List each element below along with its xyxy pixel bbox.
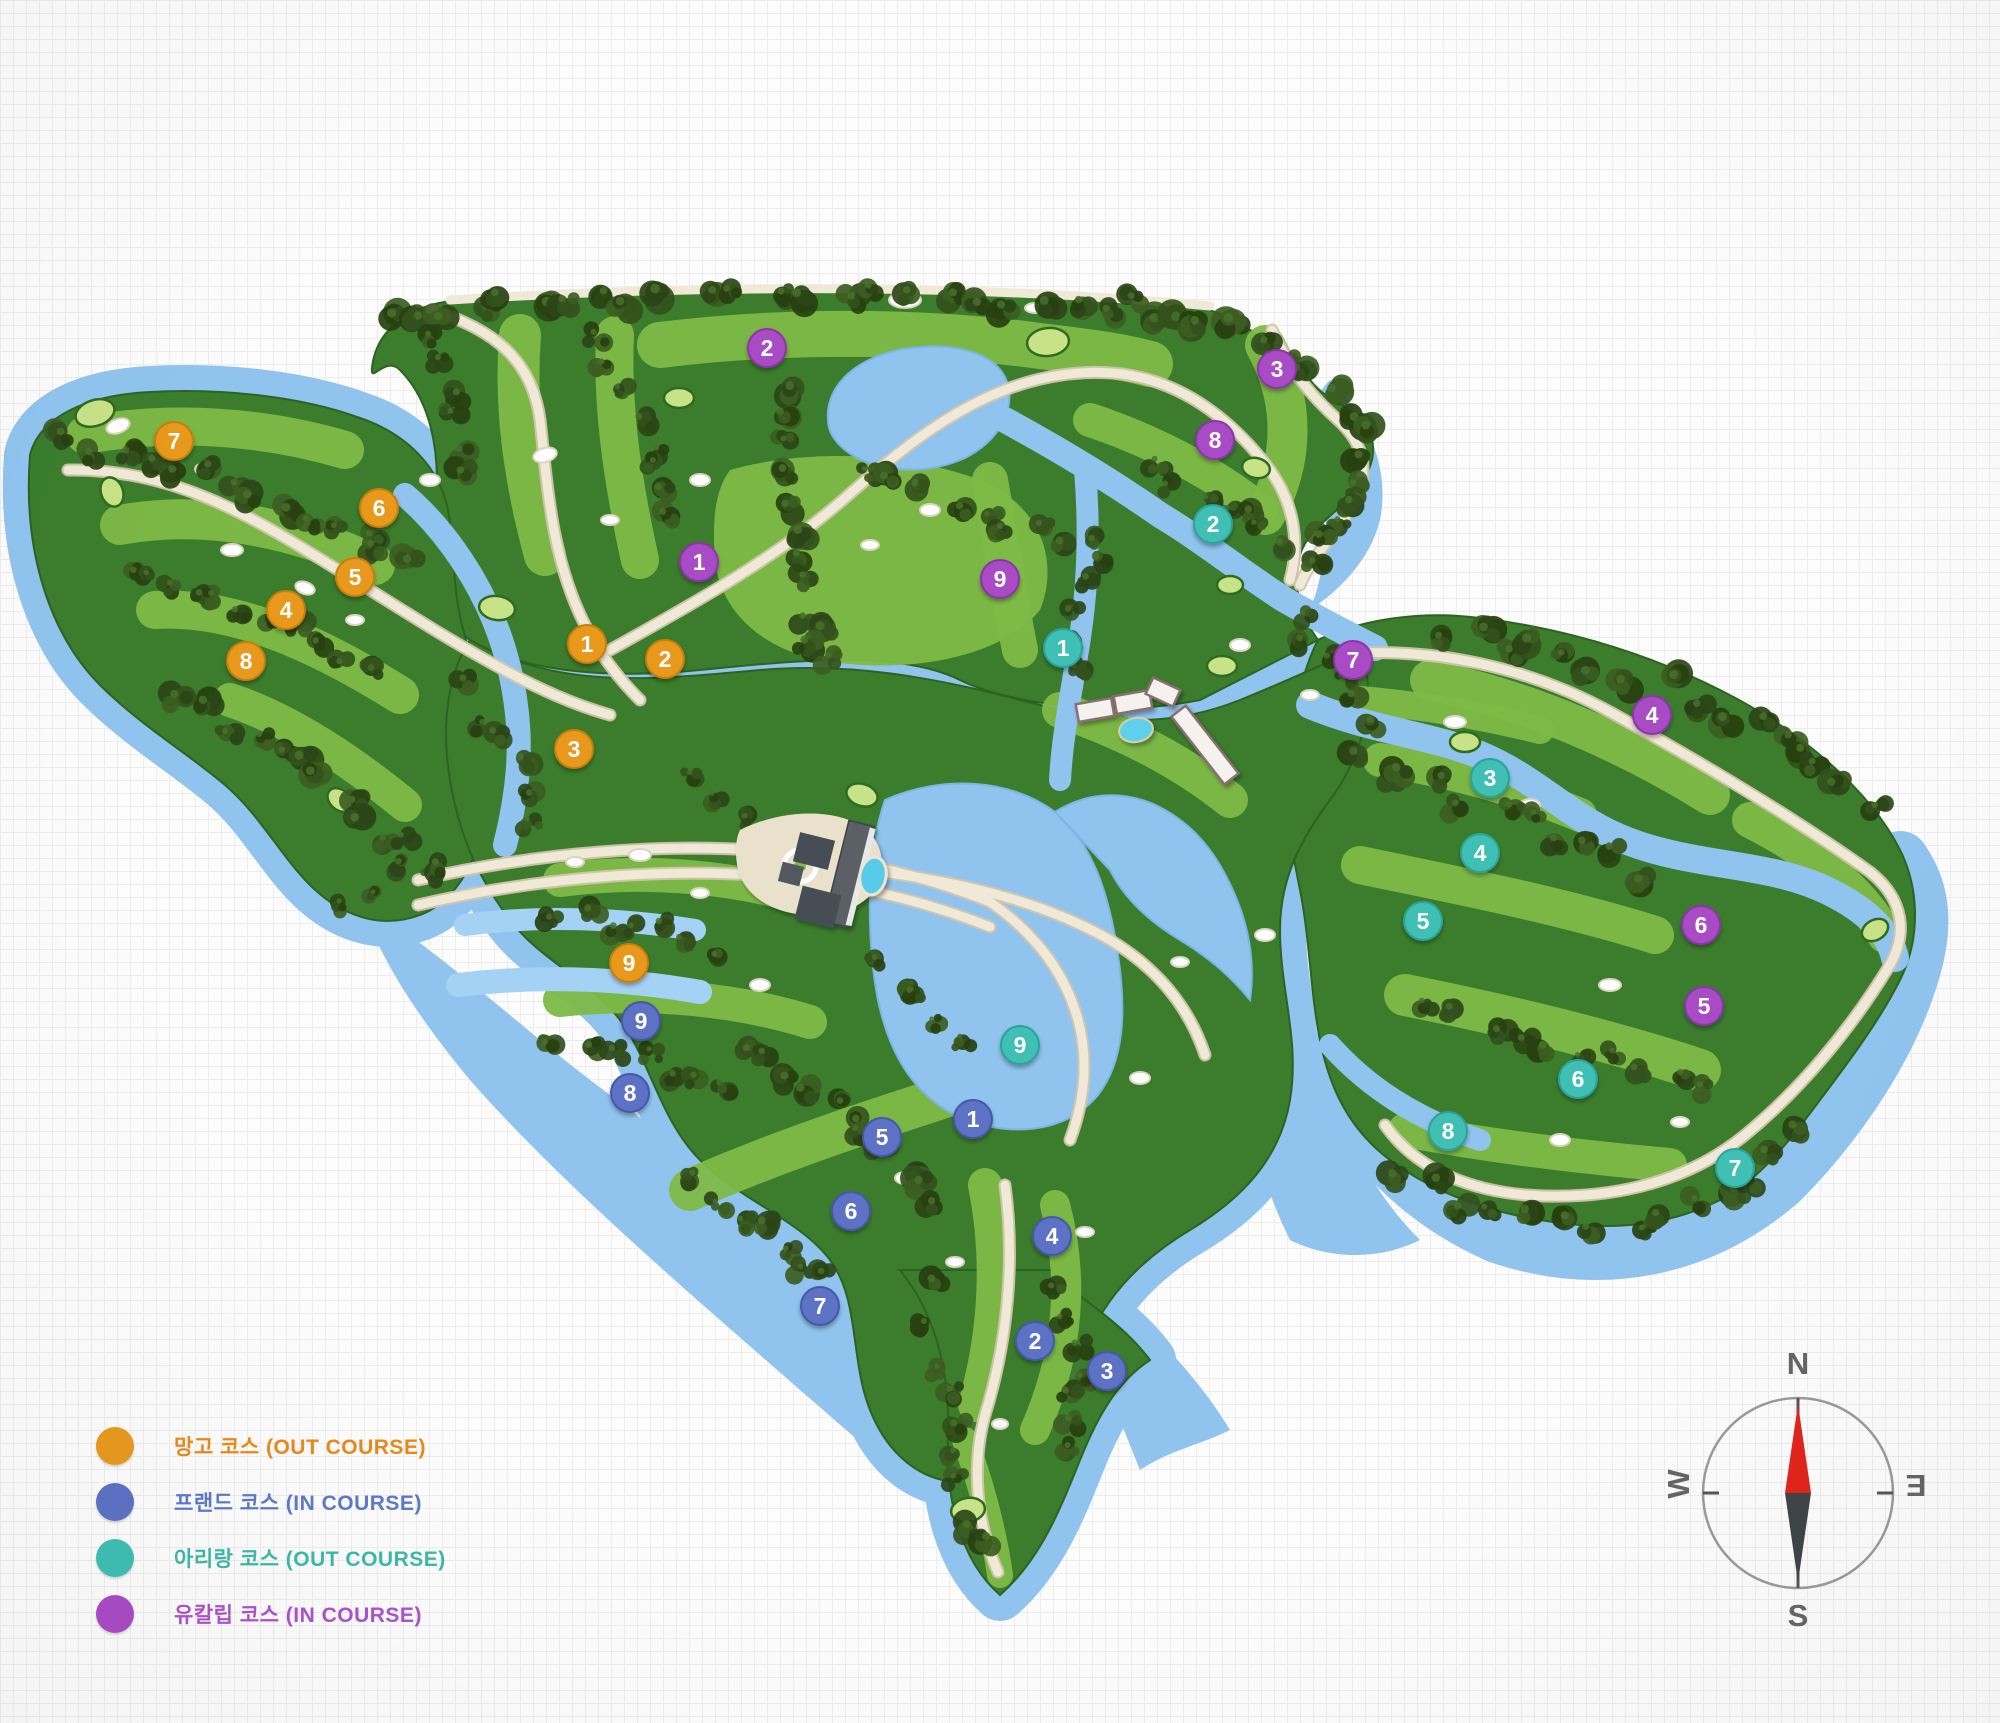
tree-highlight (669, 1070, 676, 1077)
tree-highlight (1350, 479, 1356, 485)
tree-cluster (995, 530, 1006, 541)
tree-highlight (947, 1385, 953, 1391)
hole-marker-mango-2[interactable]: 2 (646, 640, 684, 678)
sand-bunker (946, 1257, 964, 1267)
tree-highlight (1578, 837, 1586, 845)
tree-highlight (1152, 456, 1158, 462)
tree-highlight (148, 455, 155, 462)
hole-marker-arirang-1[interactable]: 1 (1044, 629, 1082, 667)
tree-highlight (1435, 632, 1442, 639)
tree-highlight (950, 1419, 957, 1426)
hole-marker-arirang-2[interactable]: 2 (1194, 505, 1232, 543)
hole-marker-number: 6 (845, 1198, 858, 1224)
sand-bunker (1171, 957, 1189, 967)
tree-highlight (1245, 505, 1252, 512)
sand-bunker (566, 857, 584, 867)
legend-label-eucalyptus: 유칼립 코스 (IN COURSE) (174, 1599, 422, 1629)
tree-highlight (949, 288, 957, 296)
tree-highlight (336, 898, 341, 903)
tree-highlight (196, 589, 203, 596)
tree-cluster (310, 519, 320, 529)
hole-marker-number: 8 (1442, 1118, 1455, 1144)
tree-highlight (982, 1532, 990, 1540)
tree-highlight (1300, 610, 1305, 615)
hole-marker-mango-4[interactable]: 4 (267, 591, 305, 629)
tree-highlight (1634, 874, 1642, 882)
hole-marker-friend-8[interactable]: 8 (611, 1074, 649, 1112)
tree-cluster (1070, 1385, 1084, 1399)
hole-marker-friend-3[interactable]: 3 (1088, 1352, 1126, 1390)
tree-highlight (1558, 649, 1565, 656)
tree-highlight (793, 525, 802, 534)
tree-highlight (984, 511, 989, 516)
tree-highlight (1639, 1225, 1645, 1231)
tree-cluster (581, 910, 593, 922)
hole-marker-mango-3[interactable]: 3 (555, 730, 593, 768)
tree-highlight (1518, 1034, 1525, 1041)
tree-cluster (338, 903, 346, 911)
tree-highlight (1203, 494, 1209, 500)
tree-highlight (780, 435, 786, 441)
tree-cluster (1080, 1334, 1094, 1348)
tree-highlight (1276, 538, 1283, 545)
tree-highlight (903, 286, 910, 293)
tree-highlight (1335, 516, 1341, 522)
tree-highlight (950, 1447, 956, 1453)
hole-marker-number: 8 (1209, 427, 1222, 453)
tree-highlight (204, 460, 211, 467)
tree-highlight (758, 1048, 765, 1055)
hole-marker-friend-2[interactable]: 2 (1016, 1322, 1054, 1360)
tree-cluster (824, 626, 838, 640)
tree-highlight (1057, 1314, 1062, 1319)
tree-highlight (650, 457, 656, 463)
legend-color-dot-eucalyptus (96, 1595, 134, 1633)
tree-cluster (951, 1043, 959, 1051)
tree-highlight (1550, 834, 1557, 841)
tree-highlight (797, 1263, 803, 1269)
tree-highlight (776, 407, 784, 415)
hole-marker-eucalyptus-5[interactable]: 5 (1685, 987, 1723, 1025)
tree-highlight (1388, 1169, 1396, 1177)
legend-label-mango: 망고 코스 (OUT COURSE) (174, 1431, 426, 1461)
tree-highlight (1760, 1146, 1768, 1154)
tree-highlight (434, 312, 442, 320)
hole-marker-arirang-4[interactable]: 4 (1461, 834, 1499, 872)
tree-cluster (582, 335, 595, 348)
hole-marker-mango-8[interactable]: 8 (227, 642, 265, 680)
tree-cluster (664, 482, 675, 493)
tree-cluster (1065, 1317, 1074, 1326)
tree-highlight (655, 483, 662, 490)
hole-marker-friend-7[interactable]: 7 (801, 1287, 839, 1325)
tree-highlight (737, 1216, 743, 1222)
hole-marker-arirang-7[interactable]: 7 (1716, 1149, 1754, 1187)
sand-bunker (920, 504, 940, 516)
tree-highlight (837, 1097, 844, 1104)
tree-highlight (232, 606, 238, 612)
tree-highlight (1432, 1173, 1441, 1182)
tree-cluster (1432, 778, 1447, 793)
tree-highlight (303, 515, 309, 521)
green-pad (664, 388, 694, 408)
hole-marker-number: 4 (1474, 840, 1487, 866)
tree-highlight (742, 813, 748, 819)
hole-marker-arirang-6[interactable]: 6 (1559, 1060, 1597, 1098)
tree-highlight (526, 789, 533, 796)
hole-marker-friend-9[interactable]: 9 (622, 1002, 660, 1040)
tree-cluster (914, 1325, 927, 1338)
tree-highlight (799, 612, 806, 619)
tree-cluster (1258, 521, 1267, 530)
tree-highlight (1454, 1202, 1462, 1210)
tree-highlight (650, 284, 660, 294)
tree-highlight (1561, 1211, 1569, 1219)
tree-highlight (1872, 802, 1878, 808)
tree-highlight (659, 508, 666, 515)
tree-highlight (676, 934, 682, 940)
hole-marker-arirang-9[interactable]: 9 (1001, 1026, 1039, 1064)
compass-needle-north (1785, 1404, 1811, 1493)
tree-highlight (295, 751, 304, 760)
tree-highlight (1348, 690, 1355, 697)
tree-cluster (936, 1371, 945, 1380)
hole-marker-friend-4[interactable]: 4 (1033, 1217, 1071, 1255)
tree-cluster (1317, 557, 1332, 572)
tree-highlight (799, 571, 805, 577)
tree-highlight (792, 288, 801, 297)
tree-cluster (764, 1211, 781, 1228)
tree-cluster (1157, 486, 1170, 499)
tree-cluster (1228, 502, 1237, 511)
tree-highlight (1128, 292, 1135, 299)
hole-marker-eucalyptus-4[interactable]: 4 (1633, 696, 1671, 734)
tree-cluster (832, 650, 842, 660)
tree-cluster (395, 837, 405, 847)
tree-highlight (85, 448, 92, 455)
tree-cluster (590, 364, 603, 377)
tree-cluster (481, 310, 492, 321)
tree-highlight (654, 445, 659, 450)
tree-cluster (336, 520, 349, 533)
tree-highlight (880, 472, 888, 480)
tree-highlight (871, 954, 877, 960)
tree-highlight (709, 790, 715, 796)
hole-marker-friend-1[interactable]: 1 (954, 1100, 992, 1138)
tree-cluster (926, 1203, 938, 1215)
hole-marker-eucalyptus-2[interactable]: 2 (748, 329, 786, 367)
tree-cluster (623, 928, 632, 937)
tree-highlight (584, 904, 591, 911)
hole-marker-number: 7 (168, 428, 181, 454)
tree-highlight (963, 1520, 971, 1528)
tree-highlight (1324, 652, 1330, 658)
tree-cluster (1637, 1065, 1648, 1076)
tree-highlight (350, 813, 359, 822)
hole-marker-number: 5 (1698, 993, 1711, 1019)
golf-course-map-page: 123456789123456789123456789123456789 N S… (0, 0, 2000, 1723)
tree-cluster (230, 732, 243, 745)
sand-bunker (1599, 979, 1621, 991)
hole-marker-number: 9 (994, 566, 1007, 592)
hole-marker-number: 1 (693, 549, 706, 575)
hole-marker-eucalyptus-9[interactable]: 9 (981, 560, 1019, 598)
legend-color-dot-arirang (96, 1539, 134, 1577)
tree-cluster (1045, 517, 1056, 528)
tree-cluster (462, 443, 474, 455)
sand-bunker (346, 615, 364, 625)
tree-cluster (1073, 601, 1086, 614)
tree-highlight (167, 580, 173, 586)
tree-highlight (1691, 1195, 1697, 1201)
hole-marker-arirang-3[interactable]: 3 (1471, 759, 1509, 797)
tree-highlight (367, 540, 374, 547)
hole-marker-arirang-8[interactable]: 8 (1429, 1112, 1467, 1150)
sand-bunker (1550, 1134, 1570, 1146)
tree-cluster (731, 288, 742, 299)
hole-marker-number: 3 (1101, 1358, 1114, 1384)
tree-highlight (906, 986, 913, 993)
hole-marker-mango-1[interactable]: 1 (568, 625, 606, 663)
tree-highlight (1065, 1415, 1071, 1421)
tree-highlight (1072, 1340, 1078, 1346)
tree-highlight (927, 1275, 935, 1283)
tree-highlight (453, 388, 460, 395)
tree-highlight (1260, 336, 1267, 343)
tree-cluster (1399, 765, 1413, 779)
tree-highlight (170, 690, 178, 698)
tree-cluster (655, 1055, 663, 1063)
tree-cluster (915, 992, 926, 1003)
hole-marker-number: 7 (1347, 647, 1360, 673)
tree-highlight (647, 1046, 652, 1051)
tree-cluster (116, 453, 128, 465)
hole-marker-number: 7 (1729, 1155, 1742, 1181)
legend: 망고 코스 (OUT COURSE)프랜드 코스 (IN COURSE)아리랑 … (96, 1427, 446, 1651)
tree-highlight (591, 329, 597, 335)
tree-cluster (1439, 1010, 1450, 1021)
hole-marker-number: 6 (1695, 912, 1708, 938)
tree-cluster (1486, 628, 1500, 642)
tree-cluster (162, 696, 179, 713)
legend-item-arirang: 아리랑 코스 (OUT COURSE) (96, 1539, 446, 1577)
tree-cluster (1434, 1180, 1448, 1194)
tree-highlight (915, 1176, 923, 1184)
tree-highlight (1677, 1069, 1683, 1075)
hole-marker-number: 6 (1572, 1066, 1585, 1092)
tree-cluster (82, 455, 93, 466)
tree-highlight (800, 636, 808, 644)
tree-highlight (558, 295, 565, 302)
tree-highlight (57, 427, 65, 435)
tree-cluster (930, 1023, 941, 1034)
tree-highlight (1064, 1442, 1070, 1448)
tree-highlight (599, 358, 605, 364)
hole-marker-number: 5 (1417, 908, 1430, 934)
hole-marker-number: 8 (240, 648, 253, 674)
tree-cluster (638, 1054, 649, 1065)
tree-cluster (427, 338, 437, 348)
legend-item-mango: 망고 코스 (OUT COURSE) (96, 1427, 446, 1465)
tree-highlight (1531, 809, 1537, 815)
tree-highlight (852, 1125, 858, 1131)
tree-cluster (615, 389, 624, 398)
legend-label-friend: 프랜드 코스 (IN COURSE) (174, 1487, 422, 1517)
sand-bunker (1301, 690, 1319, 700)
tree-cluster (1308, 610, 1317, 619)
tree-cluster (964, 1039, 977, 1052)
hole-marker-mango-5[interactable]: 5 (336, 558, 374, 596)
tree-highlight (1605, 842, 1613, 850)
hole-marker-mango-7[interactable]: 7 (155, 422, 193, 460)
tree-cluster (644, 463, 654, 473)
tree-highlight (366, 530, 373, 537)
sand-bunker (861, 540, 879, 550)
tree-highlight (1827, 778, 1835, 786)
tree-highlight (1349, 747, 1357, 755)
tree-cluster (684, 1079, 694, 1089)
tree-highlight (628, 922, 634, 928)
hole-marker-number: 2 (659, 646, 672, 672)
hole-marker-eucalyptus-8[interactable]: 8 (1196, 421, 1234, 459)
tree-highlight (956, 502, 963, 509)
tree-cluster (180, 691, 193, 704)
tree-highlight (435, 354, 441, 360)
tree-highlight (371, 889, 376, 894)
tree-cluster (1691, 707, 1703, 719)
tree-cluster (1079, 668, 1092, 681)
tree-highlight (1093, 553, 1100, 560)
compass-label-s: S (1788, 1598, 1809, 1633)
tree-highlight (616, 297, 625, 306)
tree-highlight (546, 914, 552, 920)
tree-highlight (1539, 1041, 1547, 1049)
tree-highlight (1506, 801, 1512, 807)
tree-highlight (997, 522, 1004, 529)
tree-highlight (282, 503, 291, 512)
tree-highlight (1446, 1003, 1453, 1010)
hole-marker-number: 4 (1646, 702, 1659, 728)
tree-cluster (470, 725, 482, 737)
hole-marker-number: 8 (624, 1080, 637, 1106)
tree-highlight (1809, 758, 1816, 765)
hole-marker-number: 2 (761, 335, 774, 361)
hole-marker-number: 6 (373, 495, 386, 521)
tree-cluster (142, 462, 153, 473)
tree-highlight (1362, 421, 1371, 430)
tree-cluster (1531, 814, 1540, 823)
sand-bunker (750, 979, 770, 991)
hole-marker-number: 4 (1046, 1223, 1059, 1249)
tree-highlight (779, 464, 787, 472)
tree-cluster (799, 292, 813, 306)
tree-highlight (1718, 712, 1727, 721)
hole-marker-mango-6[interactable]: 6 (360, 489, 398, 527)
tree-cluster (1612, 842, 1624, 854)
compass-label-n: N (1787, 1346, 1809, 1381)
tree-cluster (792, 642, 805, 655)
hole-marker-eucalyptus-1[interactable]: 1 (680, 543, 718, 581)
hole-marker-number: 2 (1207, 511, 1220, 537)
sand-bunker (992, 1419, 1008, 1429)
tree-highlight (1102, 305, 1109, 312)
tree-highlight (635, 413, 642, 420)
tree-cluster (785, 433, 794, 442)
tree-highlight (403, 555, 411, 563)
hole-marker-number: 5 (876, 1124, 889, 1150)
tree-cluster (873, 959, 885, 971)
tree-highlight (460, 674, 467, 681)
tree-cluster (594, 293, 607, 306)
tree-highlight (279, 746, 285, 752)
tree-cluster (917, 479, 929, 491)
hole-marker-eucalyptus-3[interactable]: 3 (1258, 350, 1296, 388)
compass-label-e: E (1906, 1468, 1927, 1503)
tree-cluster (788, 496, 801, 509)
tree-highlight (1075, 296, 1083, 304)
tree-cluster (864, 473, 873, 482)
tree-highlight (1056, 536, 1064, 544)
tree-cluster (1488, 1209, 1498, 1219)
tree-highlight (398, 832, 404, 838)
hole-marker-arirang-5[interactable]: 5 (1404, 902, 1442, 940)
tree-cluster (1342, 519, 1351, 528)
hole-marker-eucalyptus-6[interactable]: 6 (1682, 906, 1720, 944)
tree-cluster (374, 840, 385, 851)
tree-cluster (664, 1075, 675, 1086)
tree-highlight (1481, 1204, 1487, 1210)
tree-cluster (1148, 464, 1158, 474)
tree-highlight (785, 381, 794, 390)
hole-marker-number: 1 (967, 1106, 980, 1132)
tree-cluster (645, 421, 656, 432)
tree-cluster (719, 1203, 731, 1215)
tree-highlight (1616, 675, 1625, 684)
hole-marker-mango-9[interactable]: 9 (610, 944, 648, 982)
tree-cluster (1693, 1203, 1703, 1213)
tree-highlight (1088, 535, 1094, 541)
tree-highlight (615, 384, 620, 389)
tree-highlight (716, 1079, 722, 1085)
tree-highlight (243, 490, 251, 498)
hole-marker-friend-5[interactable]: 5 (863, 1118, 901, 1156)
tree-highlight (331, 522, 337, 528)
tree-highlight (130, 567, 136, 573)
tree-highlight (783, 1246, 788, 1251)
tree-highlight (610, 922, 617, 929)
tree-highlight (862, 466, 867, 471)
tree-cluster (934, 1014, 942, 1022)
tree-highlight (758, 1216, 766, 1224)
tree-highlight (708, 286, 716, 294)
tree-highlight (1630, 1063, 1637, 1070)
tree-highlight (1697, 1081, 1703, 1087)
hole-marker-eucalyptus-7[interactable]: 7 (1334, 641, 1372, 679)
tree-cluster (614, 1049, 624, 1059)
tree-highlight (656, 918, 663, 925)
tree-cluster (495, 735, 507, 747)
tree-highlight (306, 766, 315, 775)
tree-cluster (163, 588, 172, 597)
tree-highlight (489, 727, 496, 734)
tree-cluster (240, 612, 250, 622)
tree-highlight (847, 292, 854, 299)
tree-cluster (199, 467, 211, 479)
legend-label-arirang: 아리랑 코스 (OUT COURSE) (174, 1543, 446, 1573)
tree-cluster (954, 1381, 964, 1391)
hole-marker-friend-6[interactable]: 6 (832, 1192, 870, 1230)
tree-highlight (457, 466, 464, 473)
